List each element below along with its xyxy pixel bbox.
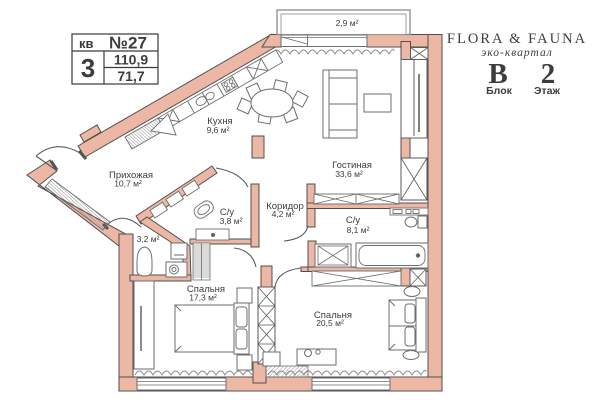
svg-text:FLORA & FAUNA: FLORA & FAUNA	[447, 31, 587, 47]
svg-text:3,2 м²: 3,2 м²	[137, 234, 160, 244]
svg-text:3,8 м²: 3,8 м²	[220, 216, 243, 226]
svg-text:9,6 м²: 9,6 м²	[207, 125, 230, 135]
svg-text:33,6 м²: 33,6 м²	[335, 169, 363, 179]
svg-text:17,3 м²: 17,3 м²	[189, 293, 217, 303]
svg-text:2,9 м²: 2,9 м²	[336, 18, 359, 28]
svg-text:Блок: Блок	[486, 85, 512, 97]
svg-text:71,7: 71,7	[117, 68, 144, 84]
svg-text:кв: кв	[79, 36, 94, 51]
svg-text:20,5 м²: 20,5 м²	[316, 318, 344, 328]
svg-text:3: 3	[81, 53, 95, 83]
svg-text:Этаж: Этаж	[534, 85, 560, 97]
svg-text:№27: №27	[109, 34, 147, 53]
svg-text:8,1 м²: 8,1 м²	[347, 225, 370, 235]
svg-text:10,7 м²: 10,7 м²	[114, 179, 142, 189]
svg-text:110,9: 110,9	[114, 52, 148, 68]
svg-text:4,2 м²: 4,2 м²	[272, 209, 295, 219]
